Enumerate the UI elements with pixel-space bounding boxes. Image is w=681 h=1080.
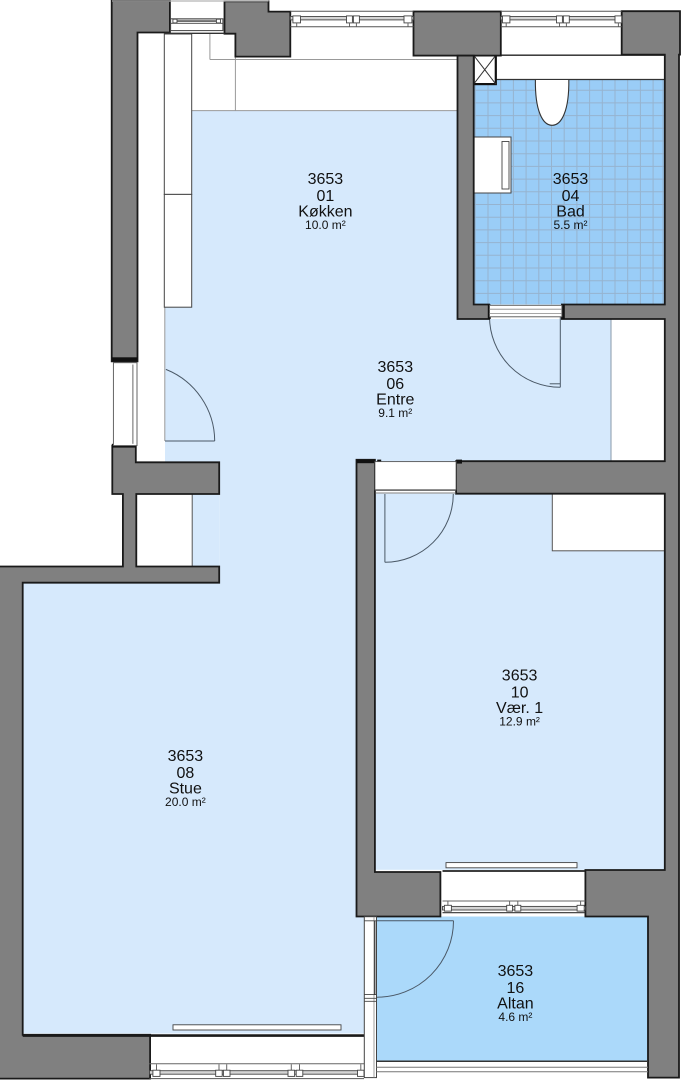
- svg-text:16: 16: [507, 980, 525, 997]
- svg-text:3653: 3653: [498, 963, 534, 980]
- svg-text:5.5 m²: 5.5 m²: [553, 218, 587, 232]
- svg-text:3653: 3653: [553, 171, 589, 188]
- svg-text:04: 04: [562, 188, 580, 205]
- svg-text:3653: 3653: [168, 748, 204, 765]
- svg-text:3653: 3653: [378, 359, 414, 376]
- svg-text:01: 01: [317, 188, 335, 205]
- svg-text:3653: 3653: [308, 171, 344, 188]
- svg-text:3653: 3653: [502, 668, 538, 685]
- svg-text:4.6 m²: 4.6 m²: [498, 1010, 532, 1024]
- svg-text:06: 06: [386, 376, 404, 393]
- svg-text:08: 08: [177, 765, 195, 782]
- svg-text:10.0 m²: 10.0 m²: [305, 218, 346, 232]
- svg-text:12.9 m²: 12.9 m²: [499, 715, 540, 729]
- svg-text:10: 10: [511, 685, 529, 702]
- svg-text:9.1 m²: 9.1 m²: [378, 406, 412, 420]
- svg-text:20.0 m²: 20.0 m²: [165, 795, 206, 809]
